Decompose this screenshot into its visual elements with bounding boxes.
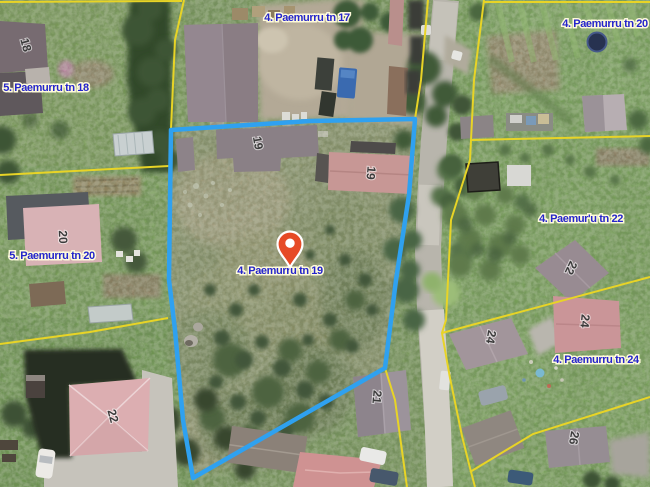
svg-text:5. Paemurru tn 20: 5. Paemurru tn 20 xyxy=(9,250,95,262)
svg-text:4. Paemurru tn 19: 4. Paemurru tn 19 xyxy=(237,265,323,277)
svg-text:21: 21 xyxy=(369,390,384,405)
svg-text:24: 24 xyxy=(577,314,592,329)
svg-text:24: 24 xyxy=(483,329,499,345)
svg-text:4. Paemur'u tn 22: 4. Paemur'u tn 22 xyxy=(539,213,623,225)
svg-text:5. Paemurru tn 18: 5. Paemurru tn 18 xyxy=(3,82,89,94)
svg-text:19: 19 xyxy=(250,135,266,151)
svg-text:20: 20 xyxy=(56,230,70,244)
svg-text:4. Paemurru tn 24: 4. Paemurru tn 24 xyxy=(553,354,640,366)
svg-text:19: 19 xyxy=(363,166,378,181)
svg-text:4. Paemurru tn 20: 4. Paemurru tn 20 xyxy=(562,18,648,30)
svg-text:26: 26 xyxy=(566,430,582,446)
svg-text:4. Paemurru tn 17: 4. Paemurru tn 17 xyxy=(264,12,350,24)
